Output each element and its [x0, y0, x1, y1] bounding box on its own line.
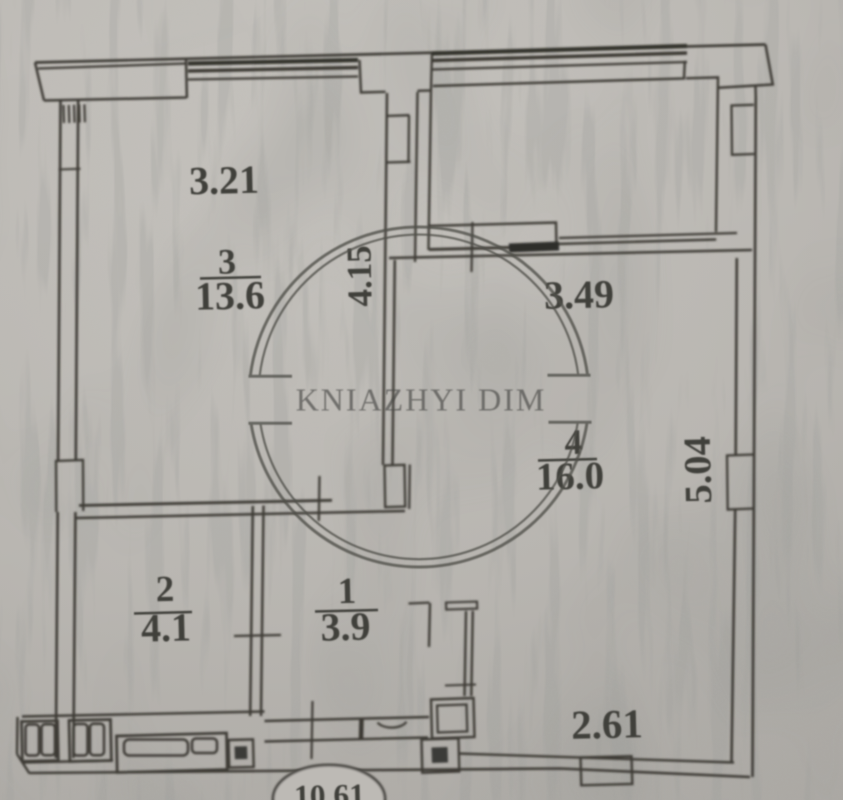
svg-text:2.61: 2.61 — [571, 700, 644, 748]
svg-text:3.21: 3.21 — [188, 157, 259, 204]
svg-text:5.04: 5.04 — [677, 436, 721, 504]
svg-text:10.61: 10.61 — [294, 777, 366, 800]
svg-text:4.15: 4.15 — [339, 245, 379, 307]
svg-text:13.6: 13.6 — [194, 272, 265, 319]
svg-text:4.1: 4.1 — [140, 604, 191, 650]
svg-text:KNIAZHYI DIM: KNIAZHYI DIM — [296, 382, 547, 418]
svg-text:3.9: 3.9 — [320, 603, 371, 649]
